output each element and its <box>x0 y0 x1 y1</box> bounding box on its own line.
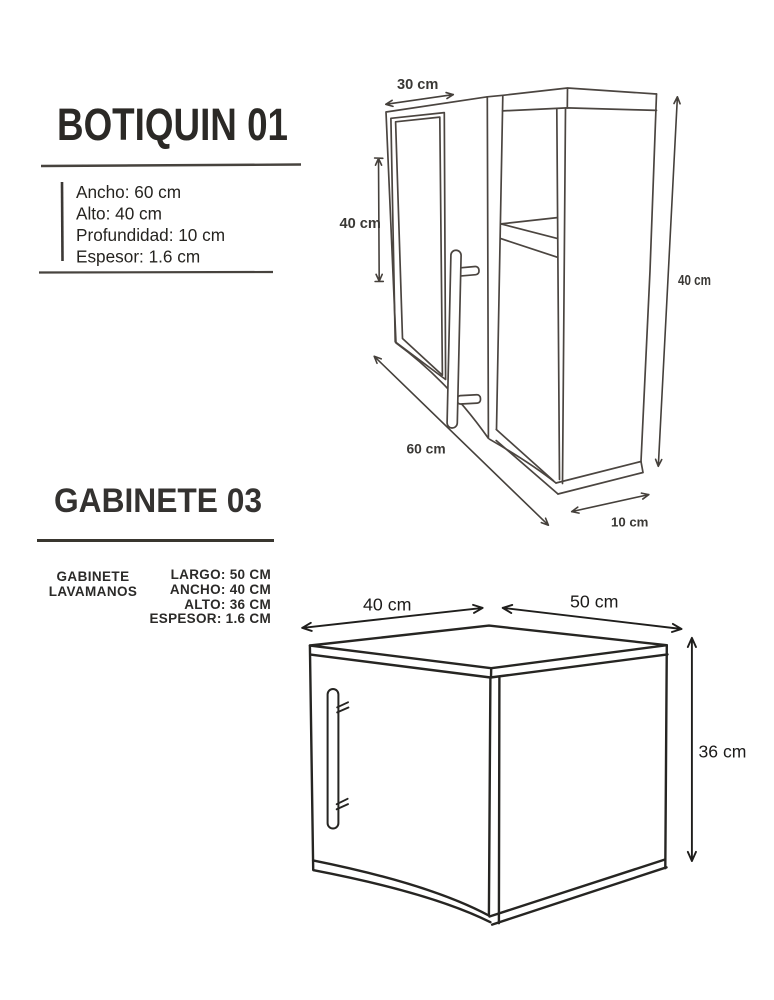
svg-text:60 cm: 60 cm <box>407 442 446 457</box>
svg-text:GABINETE 03: GABINETE 03 <box>54 482 262 520</box>
svg-text:Espesor: 1.6 cm: Espesor: 1.6 cm <box>76 247 200 267</box>
svg-text:10 cm: 10 cm <box>611 514 648 529</box>
svg-text:40 cm: 40 cm <box>340 216 381 232</box>
svg-text:ALTO: 36 CM: ALTO: 36 CM <box>184 597 271 612</box>
svg-text:Ancho: 60 cm: Ancho: 60 cm <box>76 182 181 202</box>
svg-text:ANCHO: 40 CM: ANCHO: 40 CM <box>170 582 271 597</box>
svg-text:LARGO: 50 CM: LARGO: 50 CM <box>171 567 271 582</box>
svg-text:Profundidad: 10 cm: Profundidad: 10 cm <box>76 225 225 245</box>
svg-text:30 cm: 30 cm <box>397 77 438 93</box>
svg-text:ESPESOR: 1.6 CM: ESPESOR: 1.6 CM <box>149 611 271 626</box>
svg-text:50 cm: 50 cm <box>570 592 618 612</box>
svg-text:BOTIQUIN 01: BOTIQUIN 01 <box>57 99 288 150</box>
svg-text:Alto: 40 cm: Alto: 40 cm <box>76 204 162 224</box>
svg-text:GABINETE: GABINETE <box>57 569 130 584</box>
svg-text:40 cm: 40 cm <box>678 272 711 289</box>
svg-text:36 cm: 36 cm <box>699 742 747 762</box>
svg-text:LAVAMANOS: LAVAMANOS <box>49 584 138 599</box>
svg-text:40 cm: 40 cm <box>363 594 411 614</box>
